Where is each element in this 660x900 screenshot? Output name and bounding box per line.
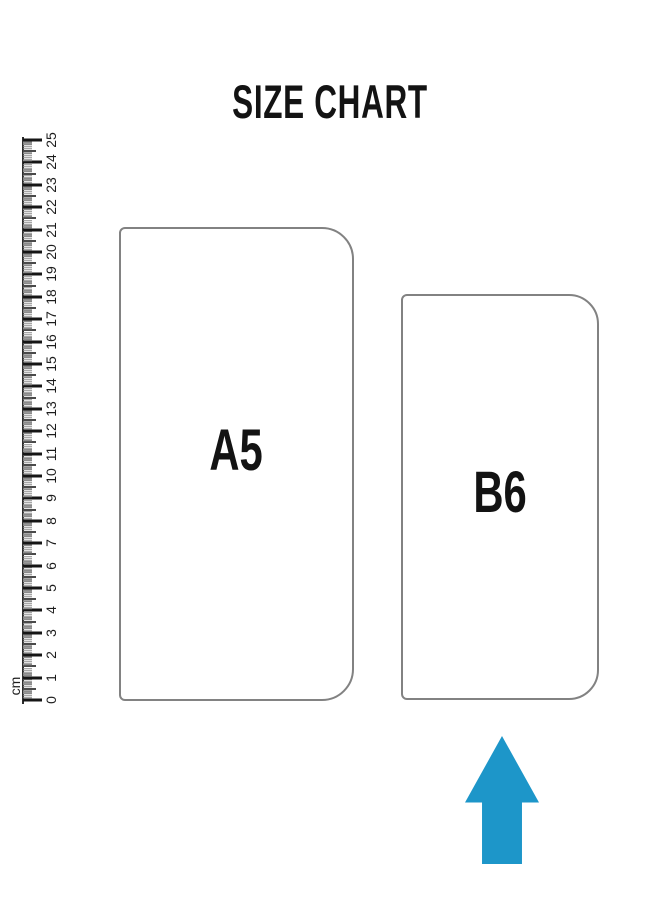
ruler-tick (23, 354, 32, 356)
ruler-tick (23, 652, 32, 654)
ruler-tick (23, 236, 32, 238)
ruler-tick (23, 560, 32, 562)
ruler-tick (23, 383, 32, 385)
ruler-tick (23, 385, 42, 388)
ruler-tick (23, 497, 42, 500)
ruler-tick (23, 361, 32, 363)
ruler-tick (23, 265, 32, 267)
ruler-tick (23, 603, 32, 605)
ruler-tick (23, 365, 32, 367)
ruler-tick-label: 8 (44, 517, 58, 525)
ruler-tick (23, 363, 42, 366)
ruler-tick (23, 581, 32, 583)
ruler-tick (23, 542, 42, 545)
ruler-tick (23, 547, 32, 549)
ruler-tick (23, 489, 32, 491)
ruler-tick (23, 681, 32, 683)
ruler-tick (23, 421, 32, 423)
ruler-tick (23, 377, 32, 379)
ruler-tick (23, 484, 32, 486)
ruler-tick-label: 14 (44, 379, 58, 395)
ruler-tick (23, 318, 42, 321)
ruler-tick (23, 645, 32, 647)
ruler-tick (23, 415, 32, 417)
ruler-tick (23, 631, 42, 634)
ruler-tick (23, 183, 42, 186)
ruler-tick-label: 13 (44, 401, 58, 417)
ruler-tick (23, 228, 42, 231)
ruler-tick (23, 303, 32, 305)
ruler-tick (23, 553, 36, 555)
ruler-tick (23, 175, 32, 177)
ruler-tick-label: 17 (44, 311, 58, 327)
ruler-tick (23, 312, 32, 314)
ruler-tick (23, 186, 32, 188)
ruler-tick (23, 343, 32, 345)
ruler-tick-label: 1 (44, 674, 58, 682)
ruler-tick (23, 334, 32, 336)
ruler-tick (23, 502, 32, 504)
ruler-tick-label: 2 (44, 651, 58, 659)
ruler-tick (23, 177, 32, 179)
ruler-tick-label: 20 (44, 244, 58, 260)
ruler-tick (23, 407, 42, 410)
ruler-tick (23, 336, 32, 338)
ruler-tick (23, 480, 32, 482)
ruler-tick (23, 233, 32, 235)
ruler-tick (23, 495, 32, 497)
ruler-tick (23, 493, 32, 495)
ruler-tick (23, 292, 32, 294)
ruler-tick (23, 307, 36, 309)
ruler-tick (23, 690, 32, 692)
ruler-tick (23, 395, 32, 397)
ruler-tick (23, 654, 42, 657)
ruler-tick (23, 525, 32, 527)
ruler-tick-label: 22 (44, 199, 58, 215)
ruler-tick (23, 592, 32, 594)
ruler-tick (23, 697, 32, 699)
ruler-tick (23, 180, 32, 182)
ruler-tick (23, 148, 32, 150)
ruler-tick (23, 469, 32, 471)
ruler-tick (23, 518, 32, 520)
ruler-tick (23, 173, 36, 175)
ruler-tick (23, 663, 32, 665)
ruler-tick (23, 359, 32, 361)
ruler-tick (23, 332, 32, 334)
ruler-tick (23, 475, 42, 478)
ruler-tick (23, 596, 32, 598)
ruler-tick (23, 139, 42, 142)
ruler-tick (23, 601, 32, 603)
ruler-tick-label: 19 (44, 267, 58, 283)
ruler-tick-label: 11 (44, 446, 58, 461)
ruler-tick (23, 462, 32, 464)
ruler-tick (23, 688, 36, 690)
ruler-tick (23, 294, 32, 296)
ruler-tick-label: 0 (44, 696, 58, 704)
ruler-tick (23, 482, 32, 484)
ruler-tick-label: 9 (44, 494, 58, 502)
ruler-tick (23, 283, 32, 285)
ruler-tick (23, 477, 32, 479)
ruler-tick (23, 202, 32, 204)
ruler-tick (23, 419, 36, 421)
ruler-tick (23, 511, 32, 513)
ruler-tick (23, 298, 32, 300)
ruler-tick (23, 209, 32, 211)
ruler-tick (23, 522, 32, 524)
ruler-tick (23, 540, 32, 542)
ruler-tick (23, 668, 32, 670)
ruler-tick (23, 491, 32, 493)
ruler-tick (23, 200, 32, 202)
ruler-tick-label: 24 (44, 155, 58, 171)
ruler-tick (23, 197, 32, 199)
ruler-tick (23, 452, 42, 455)
ruler-tick (23, 625, 32, 627)
size-chart-page: SIZE CHART cm 01234567891011121314151617… (0, 0, 660, 900)
ruler-tick (23, 309, 32, 311)
ruler-tick (23, 471, 32, 473)
ruler-tick (23, 329, 36, 331)
ruler-tick (23, 634, 32, 636)
ruler-tick (23, 507, 32, 509)
ruler-tick (23, 213, 32, 215)
ruler-tick (23, 168, 32, 170)
ruler-tick (23, 316, 32, 318)
ruler-tick (23, 321, 32, 323)
ruler-tick (23, 357, 32, 359)
ruler-tick (23, 538, 32, 540)
ruler-tick (23, 587, 42, 590)
ruler-tick (23, 446, 32, 448)
ruler-tick (23, 242, 32, 244)
ruler-tick (23, 614, 32, 616)
ruler-tick (23, 609, 42, 612)
ruler-tick (23, 285, 36, 287)
ruler-tick (23, 276, 32, 278)
ruler-tick (23, 695, 32, 697)
ruler-tick (23, 195, 36, 197)
ruler-tick (23, 182, 32, 184)
ruler-tick (23, 390, 32, 392)
ruler-tick (23, 648, 32, 650)
ruler-tick (23, 466, 32, 468)
ruler-tick (23, 144, 32, 146)
ruler-tick-label: 10 (44, 468, 58, 484)
ruler-tick (23, 368, 32, 370)
ruler-tick (23, 305, 32, 307)
ruler-tick (23, 486, 36, 488)
ruler-tick (23, 433, 32, 435)
ruler-tick (23, 536, 32, 538)
ruler-tick (23, 141, 32, 143)
ruler-tick (23, 327, 32, 329)
ruler-tick (23, 238, 32, 240)
ruler-tick (23, 451, 32, 453)
ruler-tick-label: 18 (44, 289, 58, 305)
ruler-tick (23, 253, 32, 255)
ruler-tick (23, 224, 32, 226)
ruler-tick (23, 670, 32, 672)
ruler-tick (23, 439, 32, 441)
ruler-tick (23, 191, 32, 193)
ruler-tick (23, 659, 32, 661)
ruler-tick (23, 258, 32, 260)
ruler-tick (23, 193, 32, 195)
ruler-tick (23, 605, 32, 607)
ruler-tick (23, 392, 32, 394)
ruler-tick (23, 598, 36, 600)
ruler-tick-label: 7 (44, 539, 58, 547)
ruler-tick (23, 406, 32, 408)
ruler-tick (23, 576, 36, 578)
ruler-tick (23, 280, 32, 282)
ruler-tick (23, 325, 32, 327)
ruler-tick (23, 289, 32, 291)
ruler-tick (23, 352, 36, 354)
ruler-tick (23, 171, 32, 173)
ruler-tick-label: 12 (44, 423, 58, 439)
ruler-tick (23, 585, 32, 587)
ruler-tick (23, 551, 32, 553)
ruler-tick (23, 628, 32, 630)
ruler-tick (23, 556, 32, 558)
ruler-tick (23, 637, 32, 639)
ruler-tick (23, 457, 32, 459)
ruler-tick (23, 256, 32, 258)
ruler-tick (23, 612, 32, 614)
ruler-tick (23, 527, 32, 529)
ruler-tick (23, 428, 32, 430)
ruler-tick (23, 339, 32, 341)
ruler-tick (23, 269, 32, 271)
ruler-tick (23, 404, 32, 406)
ruler-tick (23, 661, 32, 663)
ruler-tick (23, 578, 32, 580)
ruler-tick (23, 345, 32, 347)
ruler-tick (23, 217, 36, 219)
ruler-tick (23, 159, 32, 161)
ruler-tick (23, 271, 32, 273)
ruler-tick (23, 166, 32, 168)
ruler-tick (23, 643, 36, 645)
ruler-tick (23, 267, 32, 269)
ruler-tick (23, 437, 32, 439)
ruler-tick (23, 563, 32, 565)
ruler-tick-label: 15 (44, 356, 58, 372)
ruler-tick (23, 567, 32, 569)
ruler-tick (23, 623, 32, 625)
ruler-tick (23, 435, 32, 437)
ruler-tick (23, 273, 42, 276)
ruler-tick-label: 4 (44, 606, 58, 614)
ruler-tick (23, 441, 36, 443)
ruler-tick (23, 594, 32, 596)
ruler-tick (23, 399, 32, 401)
ruler-tick (23, 448, 32, 450)
ruler-tick (23, 204, 32, 206)
ruler-tick (23, 350, 32, 352)
ruler-tick-label: 5 (44, 584, 58, 592)
ruler-tick (23, 245, 32, 247)
ruler-tick (23, 424, 32, 426)
ruler-tick (23, 504, 32, 506)
ruler-tick (23, 413, 32, 415)
ruler-tick-label: 23 (44, 177, 58, 193)
ruler-tick (23, 513, 32, 515)
ruler-tick (23, 455, 32, 457)
ruler-tick (23, 410, 32, 412)
ruler-tick (23, 657, 32, 659)
ruler-tick (23, 684, 32, 686)
ruler-tick (23, 227, 32, 229)
ruler-tick (23, 569, 32, 571)
ruler-tick (23, 616, 32, 618)
ruler-tick (23, 287, 32, 289)
ruler-tick (23, 574, 32, 576)
ruler-unit-label: cm (8, 677, 22, 696)
ruler-tick (23, 379, 32, 381)
ruler-tick-label: 21 (44, 222, 58, 238)
ruler-tick (23, 222, 32, 224)
ruler-tick (23, 641, 32, 643)
ruler-tick (23, 430, 42, 433)
ruler-tick (23, 426, 32, 428)
ruler-tick (23, 699, 42, 702)
ruler-tick (23, 314, 32, 316)
ruler-tick (23, 519, 42, 522)
ruler-tick (23, 251, 42, 254)
ruler-tick (23, 583, 32, 585)
ruler-tick (23, 189, 32, 191)
size-panel-a5: A5 (119, 227, 354, 701)
ruler-tick (23, 686, 32, 688)
ruler-tick (23, 444, 32, 446)
ruler-tick (23, 529, 32, 531)
ruler-tick (23, 564, 42, 567)
ruler-tick (23, 401, 32, 403)
ruler-tick (23, 630, 32, 632)
ruler-tick (23, 323, 32, 325)
ruler-tick (23, 249, 32, 251)
ruler-tick (23, 370, 32, 372)
ruler-tick (23, 206, 42, 209)
ruler-tick (23, 533, 32, 535)
ruler-tick (23, 215, 32, 217)
ruler-tick (23, 155, 32, 157)
ruler-tick (23, 545, 32, 547)
ruler-tick (23, 531, 36, 533)
ruler-tick (23, 509, 36, 511)
ruler-tick (23, 500, 32, 502)
ruler-tick (23, 607, 32, 609)
ruler-tick (23, 516, 32, 518)
ruler-tick (23, 676, 42, 679)
ruler-tick (23, 231, 32, 233)
ruler-tick (23, 381, 32, 383)
ruler-tick (23, 211, 32, 213)
ruler-tick (23, 397, 36, 399)
ruler-tick (23, 388, 32, 390)
ruler-tick (23, 146, 32, 148)
ruler-tick (23, 464, 36, 466)
ruler-tick (23, 621, 36, 623)
ruler-tick (23, 558, 32, 560)
ruler-tick (23, 220, 32, 222)
size-panel-b6: B6 (401, 294, 599, 700)
ruler-tick (23, 295, 42, 298)
ruler-tick (23, 157, 32, 159)
ruler-tick (23, 247, 32, 249)
ruler-tick (23, 693, 32, 695)
ruler-tick (23, 650, 32, 652)
ruler-tick-label: 16 (44, 334, 58, 350)
size-label-b6: B6 (473, 464, 526, 522)
ruler-tick-label: 3 (44, 629, 58, 637)
ruler-tick (23, 150, 36, 152)
ruler-tick (23, 665, 36, 667)
size-label-a5: A5 (210, 422, 263, 480)
ruler-tick-label: 6 (44, 562, 58, 570)
ruler-tick (23, 672, 32, 674)
ruler-tick (23, 278, 32, 280)
ruler-tick (23, 679, 32, 681)
ruler-tick (23, 417, 32, 419)
ruler-tick (23, 161, 42, 164)
ruler-tick (23, 372, 32, 374)
ruler-tick (23, 374, 36, 376)
ruler-tick (23, 589, 32, 591)
ruler-tick (23, 639, 32, 641)
ruler-tick (23, 348, 32, 350)
ruler-tick (23, 260, 32, 262)
ruler-tick (23, 164, 32, 166)
ruler-tick (23, 340, 42, 343)
ruler-tick (23, 240, 36, 242)
ruler-tick (23, 473, 32, 475)
ruler-tick (23, 549, 32, 551)
ruler-tick (23, 262, 36, 264)
ruler-tick (23, 572, 32, 574)
ruler-tick (23, 460, 32, 462)
ruler-tick-label: 25 (44, 132, 58, 148)
ruler-tick (23, 675, 32, 677)
ruler-tick (23, 619, 32, 621)
ruler-tick (23, 153, 32, 155)
ruler-tick (23, 301, 32, 303)
